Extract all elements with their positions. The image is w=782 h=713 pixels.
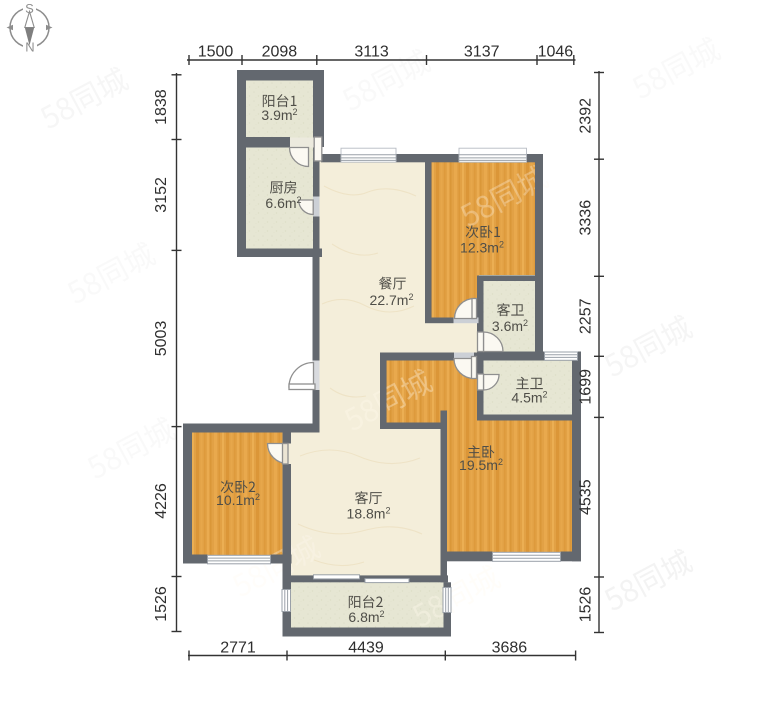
svg-text:1500: 1500 — [198, 44, 234, 61]
svg-text:1699: 1699 — [578, 369, 595, 405]
svg-text:2392: 2392 — [578, 98, 595, 134]
svg-text:18.8m2: 18.8m2 — [347, 506, 391, 522]
svg-text:1838: 1838 — [153, 89, 170, 125]
svg-text:2771: 2771 — [220, 640, 256, 657]
svg-text:3137: 3137 — [464, 44, 500, 61]
svg-text:6.6m2: 6.6m2 — [265, 195, 301, 211]
svg-text:5003: 5003 — [153, 321, 170, 357]
svg-text:N: N — [25, 40, 34, 55]
svg-text:3336: 3336 — [578, 200, 595, 236]
svg-text:2257: 2257 — [578, 298, 595, 334]
svg-text:10.1m2: 10.1m2 — [216, 492, 260, 508]
svg-text:4535: 4535 — [578, 479, 595, 515]
svg-text:22.7m2: 22.7m2 — [370, 292, 414, 308]
svg-text:3686: 3686 — [492, 640, 528, 657]
svg-text:4439: 4439 — [348, 640, 384, 657]
svg-text:3.9m2: 3.9m2 — [261, 107, 297, 123]
svg-text:6.8m2: 6.8m2 — [348, 609, 384, 625]
svg-text:19.5m2: 19.5m2 — [459, 457, 503, 473]
svg-text:3.6m2: 3.6m2 — [492, 318, 528, 334]
svg-text:12.3m2: 12.3m2 — [460, 240, 504, 256]
svg-text:1526: 1526 — [578, 587, 595, 623]
svg-text:4226: 4226 — [153, 483, 170, 519]
svg-text:1526: 1526 — [153, 586, 170, 622]
svg-text:4.5m2: 4.5m2 — [511, 390, 547, 406]
svg-text:S: S — [25, 1, 34, 16]
svg-text:1046: 1046 — [538, 44, 574, 61]
svg-text:3152: 3152 — [153, 177, 170, 213]
svg-text:2098: 2098 — [262, 44, 298, 61]
svg-text:3113: 3113 — [354, 44, 389, 61]
